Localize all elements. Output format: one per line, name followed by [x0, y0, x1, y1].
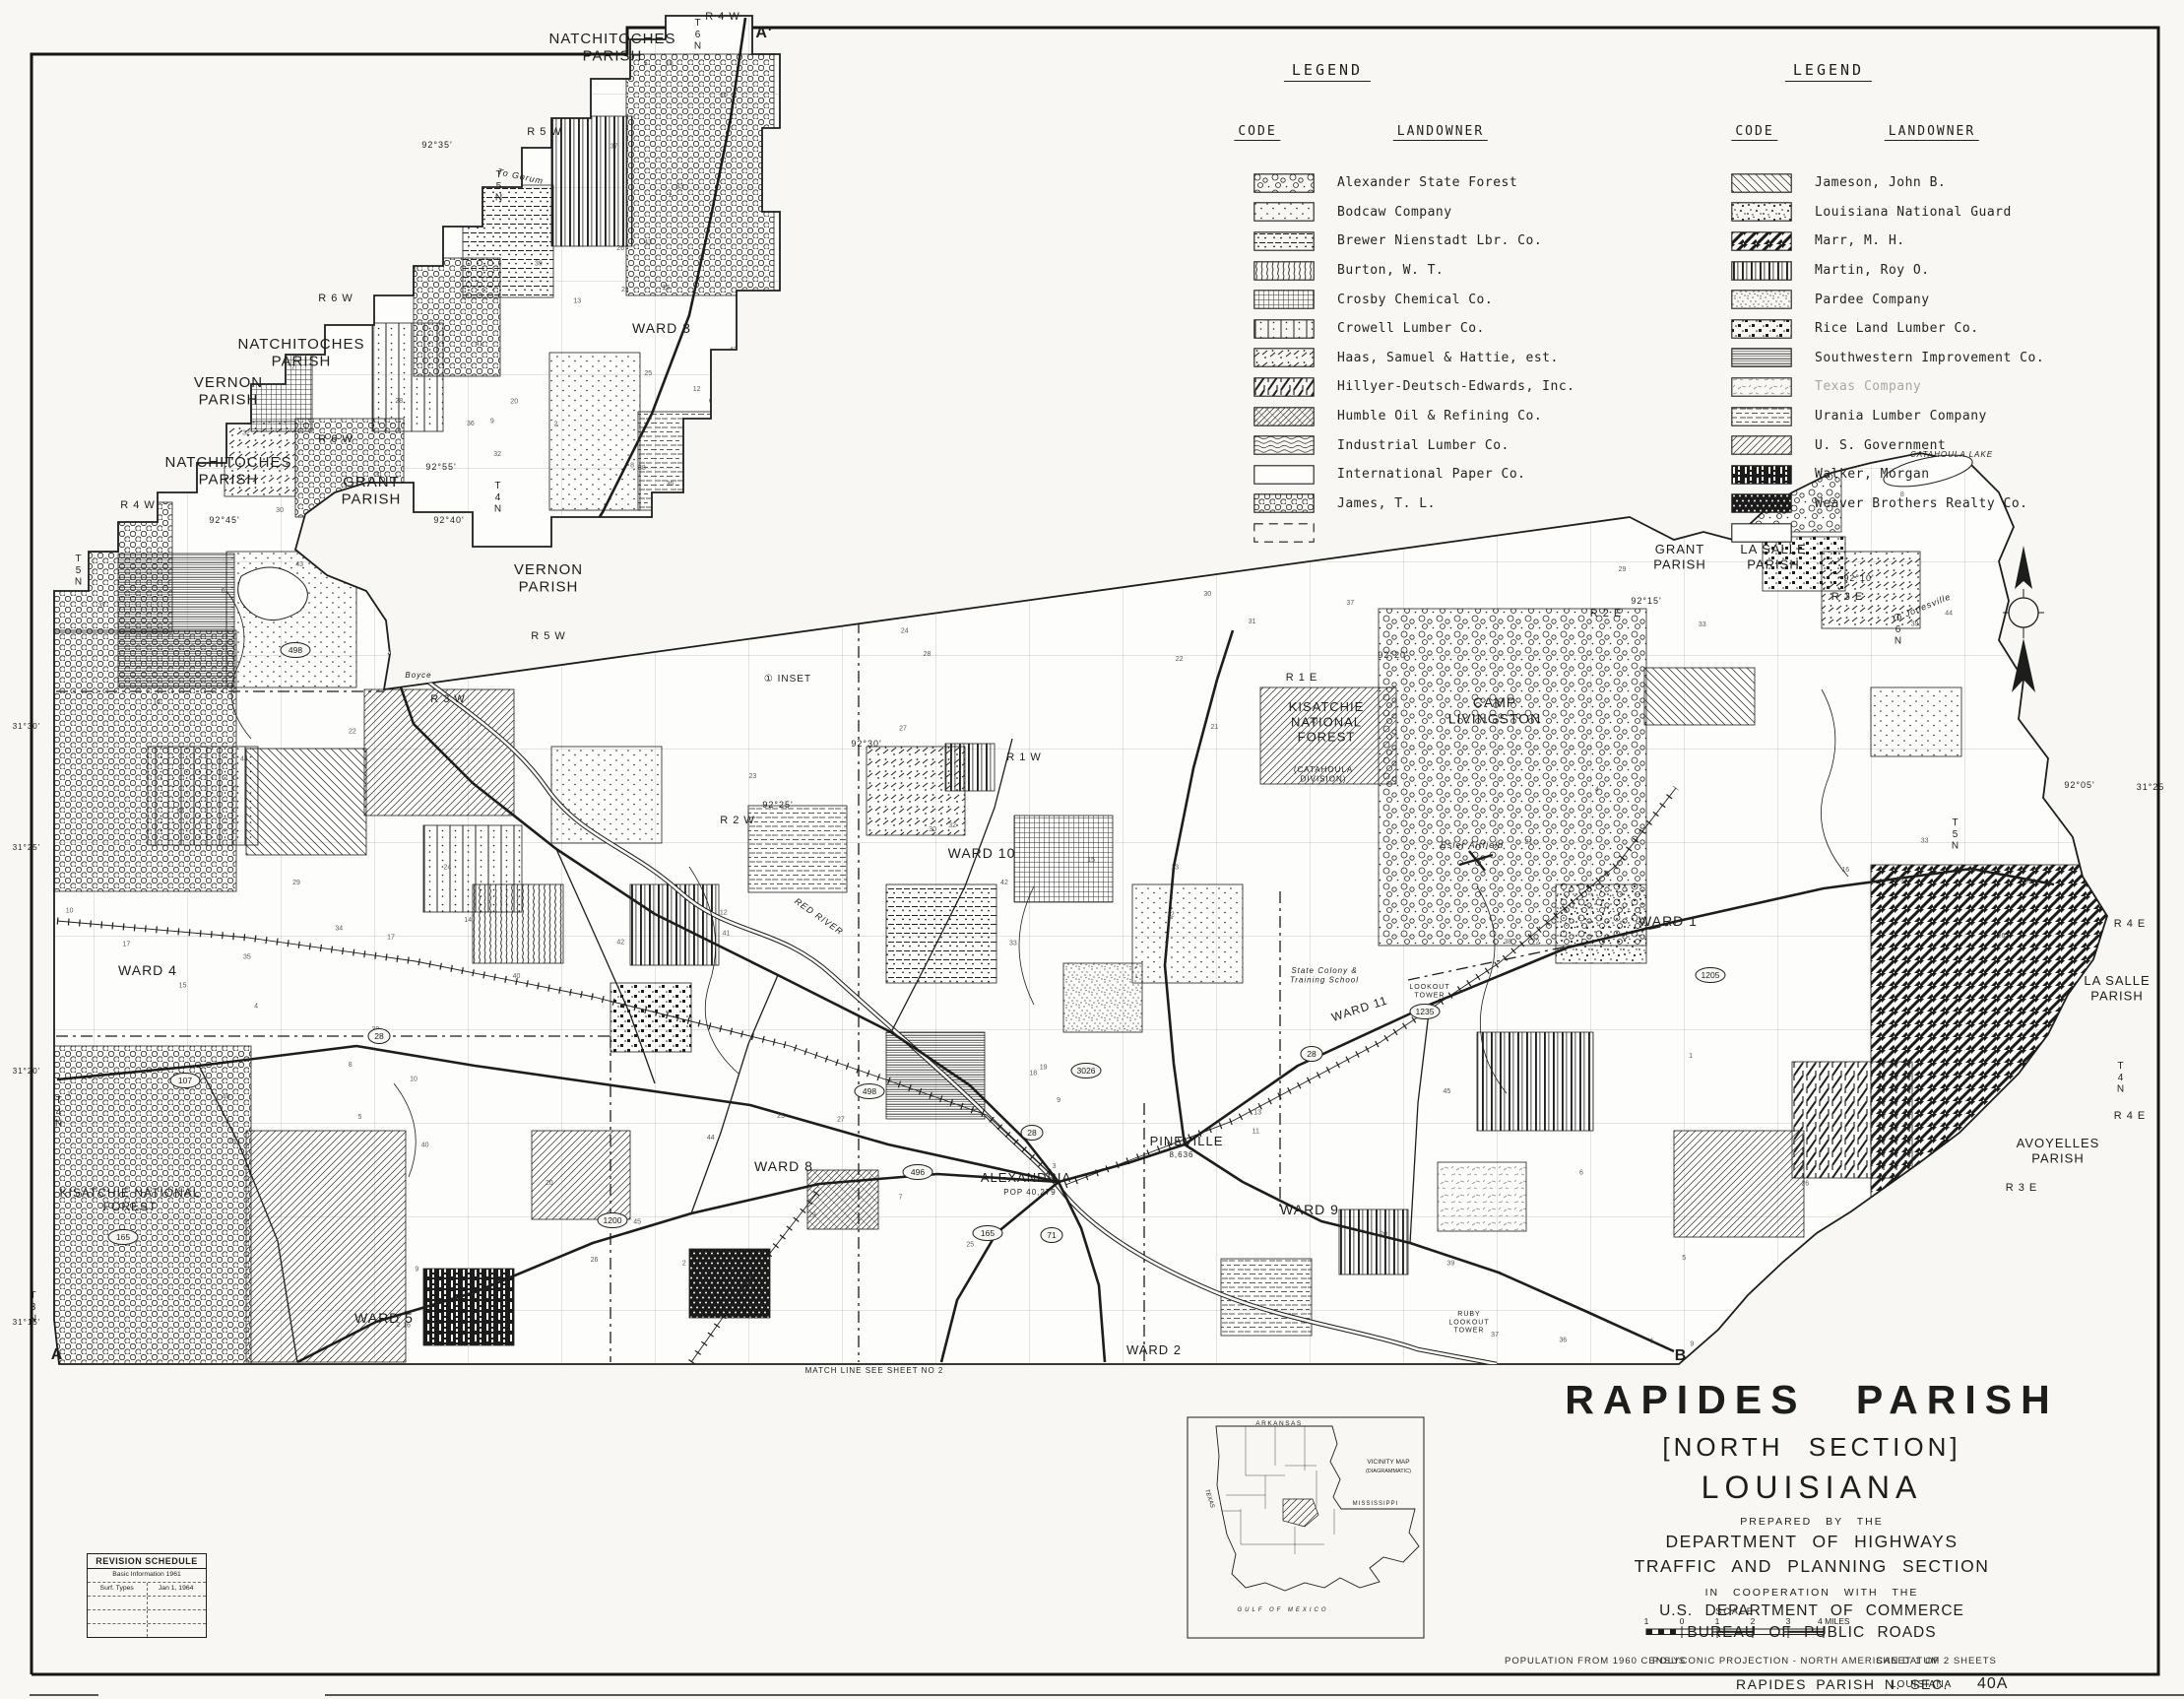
section-number: 9 — [1690, 1340, 1694, 1347]
map-label: KISATCHIENATIONALFOREST — [1289, 699, 1365, 745]
map-label: R 1 W — [1006, 751, 1042, 763]
legend-swatch-crosby-icon — [1253, 290, 1315, 309]
section-number: 40 — [223, 1094, 230, 1101]
section-number: 26 — [1998, 933, 2006, 940]
legend-label: Burton, W. T. — [1337, 263, 1444, 278]
section-number: 19 — [1138, 574, 1146, 581]
section-number: 33 — [675, 183, 683, 190]
map-label: GRANTPARISH — [1653, 542, 1705, 571]
svg-text:496: 496 — [911, 1167, 925, 1177]
section-number: 4 — [1595, 787, 1599, 794]
section-number: 32 — [242, 429, 250, 436]
map-label: WARD 10 — [948, 845, 1016, 861]
map-label: R 2 W — [720, 815, 755, 826]
section-number: 6 — [709, 398, 713, 405]
section-number: 24 — [761, 419, 769, 425]
section-number: 10 — [66, 908, 74, 915]
route-shield: 28 — [1021, 1126, 1043, 1141]
section-number: 11 — [814, 547, 821, 554]
map-label: R 4 W — [705, 11, 740, 23]
section-number: 34 — [718, 589, 726, 596]
legend-swatch-bodcaw-icon — [1253, 202, 1315, 222]
map-label: T5N — [495, 169, 503, 204]
section-number: 44 — [510, 146, 518, 153]
section-number: 8 — [311, 106, 315, 113]
section-number: 23 — [241, 176, 249, 183]
section-number: 33 — [1921, 837, 1929, 844]
map-label: 8,636 — [1169, 1150, 1193, 1159]
section-number: 22 — [672, 493, 679, 500]
section-number: 30 — [929, 826, 936, 833]
legend-label: Martin, Roy O. — [1815, 263, 1930, 278]
section-number: 12 — [693, 386, 701, 393]
section-number: 6 — [345, 153, 349, 160]
section-number: 41 — [797, 495, 804, 502]
section-number: 16 — [1841, 867, 1849, 874]
section-number: 42 — [616, 939, 624, 946]
scale-bar: SCALE 101234 MILES — [1615, 1605, 1900, 1641]
route-shield: 498 — [281, 643, 310, 658]
section-number: 44 — [240, 755, 248, 762]
section-number: 9 — [1057, 1097, 1060, 1104]
section-number: 1 — [669, 192, 673, 199]
section-number: 44 — [1945, 611, 1953, 618]
map-label: R 3 W — [430, 693, 466, 705]
scale-tick-label: 2 — [1751, 1616, 1756, 1626]
map-sheet: 1815222936435121926334029162330374461320… — [0, 0, 2184, 1699]
legend-label: U. S. Government — [1815, 438, 1946, 453]
route-shield: 165 — [973, 1226, 1002, 1241]
section-number: 1 — [1689, 1053, 1693, 1060]
map-label: R 4 W — [120, 499, 156, 511]
legend-entry: Alexander State Forest — [1253, 168, 1574, 198]
map-label: WARD 9 — [1280, 1202, 1339, 1217]
revision-title: REVISION SCHEDULE — [88, 1554, 206, 1569]
legend-entry: Urania Lumber Company — [1731, 402, 2044, 431]
legend-swatch-blank-icon — [1731, 523, 1792, 543]
section-number: 41 — [723, 930, 731, 937]
section-number: 15 — [662, 285, 670, 292]
revision-row: Surf. Types Jan 1, 1964 — [88, 1583, 206, 1597]
legend-swatch-urania-icon — [1731, 407, 1792, 426]
svg-text:3026: 3026 — [1077, 1066, 1096, 1076]
legend-entry: Haas, Samuel & Hattie, est. — [1253, 344, 1574, 373]
map-label: Boyce — [405, 671, 431, 680]
legend-label: Weaver Brothers Realty Co. — [1815, 496, 2028, 511]
svg-text:165: 165 — [116, 1232, 130, 1242]
section-number: 5 — [1682, 1255, 1686, 1262]
section-number: 2 — [554, 422, 558, 428]
scale-ticks: 101234 MILES — [1644, 1616, 1850, 1626]
map-title: RAPIDES PARISH — [1541, 1377, 2083, 1423]
parish-grid — [1222, 1426, 1334, 1554]
section-number: 12 — [720, 909, 728, 916]
scale-tick-label: 1 — [1644, 1616, 1649, 1626]
section-number: 28 — [924, 651, 931, 658]
map-label: MATCH LINE SEE SHEET NO 2 — [805, 1366, 944, 1375]
legend-entry: U. S. Government — [1731, 430, 2044, 460]
section-number: 22 — [1532, 939, 1540, 946]
legend-swatch-humble-icon — [1253, 407, 1315, 426]
map-label: State Colony &Training School — [1290, 966, 1359, 984]
section-number: 13 — [738, 433, 745, 440]
legend-label: Haas, Samuel & Hattie, est. — [1337, 351, 1559, 365]
section-number: 30 — [276, 507, 284, 514]
section-number: 29 — [808, 1212, 816, 1219]
legend-label: Southwestern Improvement Co. — [1815, 351, 2044, 365]
section-number: 26 — [616, 245, 624, 252]
map-label: 31°25' — [13, 843, 41, 852]
legend-left: LEGEND CODE LANDOWNER Alexander State Fo… — [1224, 59, 1559, 571]
legend-swatch-haas-icon — [1253, 348, 1315, 367]
map-label: PINEVILLE — [1150, 1134, 1224, 1148]
louisiana-outline — [1216, 1426, 1419, 1591]
section-number: 17 — [387, 935, 395, 942]
section-number: 27 — [366, 246, 374, 253]
route-shield: 3026 — [1071, 1064, 1101, 1078]
section-number: 29 — [292, 880, 300, 886]
section-number: 40 — [421, 1142, 429, 1148]
map-label: 31°15' — [13, 1318, 41, 1327]
section-number: 18 — [1923, 1318, 1931, 1325]
svg-text:1205: 1205 — [1702, 970, 1720, 980]
section-number: 14 — [153, 699, 161, 706]
section-number: 21 — [1525, 839, 1533, 846]
legend-entry: International Paper Co. — [1253, 460, 1574, 490]
map-label: GRANTPARISH — [342, 474, 402, 508]
svg-text:1200: 1200 — [604, 1215, 622, 1225]
legend-swatch-marr-icon — [1731, 231, 1792, 251]
map-label: B — [1675, 1347, 1688, 1364]
route-shield: 28 — [1301, 1047, 1322, 1062]
section-number: 17 — [446, 69, 454, 76]
section-number: 12 — [176, 808, 184, 815]
section-number: 43 — [295, 561, 303, 568]
inset-label-vicinity: VICINITY MAP — [1367, 1459, 1409, 1466]
map-label: WARD 1 — [1638, 913, 1698, 929]
legend-entry: Crowell Lumber Co. — [1253, 314, 1574, 344]
section-number: 20 — [510, 399, 518, 406]
legend-entry — [1731, 518, 2044, 548]
map-label: WARD 3 — [632, 320, 691, 336]
svg-text:71: 71 — [1047, 1230, 1057, 1240]
legend-rows: Jameson, John B.Louisiana National Guard… — [1731, 168, 2044, 548]
section-number: 19 — [277, 239, 285, 246]
section-number: 4 — [378, 79, 382, 86]
legend-label: James, T. L. — [1337, 496, 1436, 511]
svg-text:498: 498 — [863, 1086, 876, 1096]
map-label: WARD 4 — [118, 962, 177, 978]
section-number: 4 — [254, 1003, 258, 1010]
legend-label: Marr, M. H. — [1815, 233, 1905, 248]
section-number: 20 — [546, 1180, 553, 1187]
legend-entry: Rice Land Lumber Co. — [1731, 314, 2044, 344]
section-number: 3 — [1076, 534, 1080, 541]
section-number: 27 — [249, 219, 257, 226]
legend-label: Industrial Lumber Co. — [1337, 438, 1510, 453]
section-number: 15 — [1087, 857, 1095, 864]
legend-label: Jameson, John B. — [1815, 175, 1946, 190]
section-number: 16 — [714, 387, 722, 394]
section-number: 8 — [630, 462, 634, 469]
section-number: 33 — [1699, 621, 1706, 628]
map-label: R 1 E — [1286, 672, 1318, 684]
section-number: 2 — [682, 1261, 686, 1268]
legend-entry: Crosby Chemical Co. — [1253, 285, 1574, 314]
legend-label: Walker, Morgan — [1815, 467, 1930, 482]
section-number: 37 — [98, 602, 106, 609]
legend-label: Humble Oil & Refining Co. — [1337, 409, 1542, 424]
revision-row-empty — [88, 1610, 206, 1624]
legend-label: Brewer Nienstadt Lbr. Co. — [1337, 233, 1542, 248]
map-label: R 3 E — [2006, 1182, 2038, 1194]
map-label: 92°40' — [433, 515, 464, 525]
legend-label: Rice Land Lumber Co. — [1815, 321, 1979, 336]
map-label: T4N — [2117, 1061, 2125, 1095]
map-label: ALEXANDRIA — [981, 1170, 1071, 1185]
revision-row-empty — [88, 1624, 206, 1637]
legend-swatch-usgov-icon — [1731, 435, 1792, 455]
map-label: R 3 E — [1831, 591, 1864, 603]
route-shield: 1200 — [598, 1213, 627, 1228]
map-label: T4N — [55, 1095, 63, 1130]
map-label: WARD 8 — [754, 1158, 813, 1174]
section-number: 27 — [837, 1116, 845, 1123]
cooperation-line: IN COOPERATION WITH THE — [1541, 1587, 2083, 1599]
map-label: WARD 2 — [1126, 1342, 1182, 1357]
section-number: 20 — [258, 204, 266, 211]
scale-end-label: 4 MILES — [1818, 1616, 1850, 1626]
section-number: 39 — [1446, 1261, 1454, 1268]
section-number: 35 — [243, 953, 251, 960]
revision-date: Jan 1, 1964 — [159, 1585, 194, 1594]
legend-swatch-rice-icon — [1731, 319, 1792, 339]
route-shield: 28 — [368, 1029, 390, 1044]
legend-swatch-weaver-icon — [1731, 493, 1792, 513]
section-number: 31 — [2024, 879, 2032, 885]
legend-label: International Paper Co. — [1337, 467, 1526, 482]
revision-schedule: REVISION SCHEDULE Basic Information 1961… — [87, 1553, 207, 1638]
legend-entry: Walker, Morgan — [1731, 460, 2044, 490]
route-shield: 1205 — [1696, 968, 1725, 983]
prepared-by: PREPARED BY THE — [1541, 1516, 2083, 1528]
section-number: 6 — [222, 588, 225, 595]
section-number: 15 — [1119, 528, 1126, 535]
map-label: 92°10' — [1843, 573, 1874, 583]
legend-entry: Humble Oil & Refining Co. — [1253, 402, 1574, 431]
legend-swatch-industrial-icon — [1253, 435, 1315, 455]
section-number: 35 — [344, 88, 352, 95]
legend-label: Bodcaw Company — [1337, 205, 1452, 220]
legend-swatch-alexander-icon — [1253, 173, 1315, 193]
section-number: 10 — [720, 92, 728, 98]
section-number: 16 — [944, 585, 952, 592]
title-block: RAPIDES PARISH [NORTH SECTION] LOUISIANA… — [1541, 1377, 2083, 1642]
map-label: R 2 E — [1590, 608, 1623, 620]
section-number: 21 — [1210, 724, 1218, 731]
section-number: 5 — [644, 61, 648, 68]
legend-swatch-blank-icon — [1253, 465, 1315, 485]
section-number: 29 — [337, 115, 345, 122]
map-label: LA SALLEPARISH — [2084, 973, 2150, 1003]
map-label: T4N — [494, 481, 502, 515]
section-number: 37 — [610, 144, 618, 151]
section-number: 30 — [1203, 591, 1211, 598]
section-number: 24 — [443, 864, 451, 871]
section-number: 30 — [1678, 517, 1686, 524]
section-number: 7 — [433, 653, 437, 660]
scale-label: SCALE — [1715, 1606, 1755, 1616]
map-label: R 6 W — [318, 293, 353, 304]
section-number: 13 — [1171, 864, 1179, 871]
section-number: 26 — [591, 1257, 599, 1264]
legend-entry: Industrial Lumber Co. — [1253, 430, 1574, 460]
legend-entry — [1253, 518, 1574, 548]
section-number: 38 — [638, 465, 646, 472]
section-number: 27 — [899, 726, 907, 733]
map-label: 92°55' — [425, 462, 456, 472]
section-number: 44 — [707, 1135, 715, 1142]
section-number: 39 — [1911, 621, 1919, 628]
svg-text:498: 498 — [289, 645, 302, 655]
agency-line-1: DEPARTMENT OF HIGHWAYS — [1541, 1532, 2083, 1552]
section-number: 5 — [357, 1114, 361, 1121]
section-number: 37 — [1346, 600, 1354, 607]
vicinity-inset: ARKANSAS VICINITY MAP (DIAGRAMMATIC) TEX… — [1187, 1416, 1425, 1639]
section-number: 3 — [483, 72, 487, 79]
section-number: 22 — [349, 728, 356, 735]
section-number: 31 — [1249, 619, 1256, 625]
legend-entry: James, T. L. — [1253, 490, 1574, 519]
section-number: 23 — [228, 1139, 236, 1145]
map-label: A' — [755, 25, 772, 41]
section-number: 18 — [1029, 1070, 1037, 1077]
route-shield: 107 — [170, 1074, 200, 1088]
inset-label-diagrammatic: (DIAGRAMMATIC) — [1366, 1469, 1411, 1474]
revision-row: Basic Information 1961 — [88, 1569, 206, 1583]
section-number: 11 — [1253, 1128, 1259, 1135]
section-number: 33 — [1009, 940, 1017, 947]
legend-right: LEGEND CODE LANDOWNER Jameson, John B.Lo… — [1702, 59, 2036, 571]
legend-label: Texas Company — [1815, 379, 1921, 394]
section-number: 1 — [67, 1091, 71, 1098]
section-number: 23 — [1908, 1278, 1916, 1285]
map-label: 92°15' — [1631, 596, 1661, 606]
route-shield: 496 — [903, 1165, 932, 1180]
legend-label: Crosby Chemical Co. — [1337, 293, 1493, 307]
legend-swatch-swimp-icon — [1731, 348, 1792, 367]
section-number: 18 — [666, 61, 674, 68]
legend-label: Alexander State Forest — [1337, 175, 1517, 190]
legend-swatch-brewer-icon — [1253, 231, 1315, 251]
section-number: 11 — [463, 178, 470, 185]
route-shield: 1235 — [1410, 1005, 1440, 1019]
legend-entry: Pardee Company — [1731, 285, 2044, 314]
legend-code-header: CODE — [1731, 124, 1777, 141]
map-subtitle: [NORTH SECTION] — [1541, 1432, 2083, 1463]
map-label: 31°25 — [2137, 782, 2165, 792]
section-number: 32 — [493, 451, 501, 458]
map-label: R 4 E — [2114, 1110, 2147, 1122]
section-number: 20 — [1380, 1231, 1387, 1238]
legend-swatch-pardee-icon — [1731, 290, 1792, 309]
section-number: 1 — [1650, 1338, 1654, 1344]
map-label: Esler Airfield — [1441, 840, 1504, 850]
section-number: 8 — [349, 1062, 353, 1069]
section-number: 37 — [1491, 1332, 1499, 1339]
section-number: 35 — [1896, 877, 1904, 883]
map-label: VERNONPARISH — [194, 374, 263, 409]
legend-entry: Bodcaw Company — [1253, 198, 1574, 228]
legend-swatch-burton-icon — [1253, 261, 1315, 281]
legend-entry: Hillyer-Deutsch-Edwards, Inc. — [1253, 372, 1574, 402]
legend-label: Pardee Company — [1815, 293, 1930, 307]
section-number: 42 — [1000, 880, 1008, 886]
section-number: 25 — [777, 1113, 785, 1120]
route-shield: 71 — [1041, 1228, 1062, 1243]
scale-tick-label: 0 — [1680, 1616, 1685, 1626]
section-number: 14 — [464, 917, 472, 924]
map-label: 92°25' — [762, 800, 793, 810]
legend-label: Hillyer-Deutsch-Edwards, Inc. — [1337, 379, 1574, 394]
map-label: R 5 W — [531, 630, 566, 642]
section-number: 21 — [621, 287, 629, 294]
map-label: AVOYELLESPARISH — [2017, 1136, 2100, 1165]
inset-label-arkansas: ARKANSAS — [1255, 1420, 1302, 1427]
legend-swatch-walker-icon — [1731, 465, 1792, 485]
map-label: T6N — [694, 18, 702, 52]
revision-item: Surf. Types — [100, 1585, 134, 1594]
map-label: 92°30' — [851, 739, 881, 749]
footer-sheet: SHEET 1 OF 2 SHEETS — [1876, 1656, 1997, 1666]
svg-text:28: 28 — [374, 1031, 384, 1041]
legend-swatch-crowell-icon — [1253, 319, 1315, 339]
legend-label: Urania Lumber Company — [1815, 409, 1987, 424]
section-number: 40 — [513, 973, 521, 980]
svg-text:28: 28 — [1307, 1049, 1317, 1059]
legend-title: LEGEND — [1785, 61, 1872, 82]
legend-label: Louisiana National Guard — [1815, 205, 2012, 220]
legend-swatch-lng-icon — [1731, 202, 1792, 222]
section-number: 5 — [397, 639, 401, 646]
section-number: 13 — [573, 297, 581, 304]
legend-swatch-texas-icon — [1731, 377, 1792, 397]
map-label: R 4 E — [2114, 918, 2147, 930]
map-label: WARD 5 — [354, 1310, 414, 1326]
svg-text:28: 28 — [1027, 1128, 1037, 1138]
legend-entry: Southwestern Improvement Co. — [1731, 344, 2044, 373]
section-number: 28 — [395, 398, 403, 405]
map-label: R 5 W — [527, 126, 562, 138]
section-number: 39 — [535, 261, 543, 268]
legend-landowner-header: LANDOWNER — [1393, 124, 1488, 141]
inset-label-gulf: GULF OF MEXICO — [1237, 1607, 1328, 1613]
section-number: 19 — [1040, 1064, 1048, 1071]
section-number: 36 — [1559, 1338, 1567, 1344]
map-label: 92°05' — [2064, 780, 2094, 790]
legend-entry: Marr, M. H. — [1731, 227, 2044, 256]
section-number: 9 — [490, 418, 494, 425]
footer-page-number: 40A — [1977, 1675, 2008, 1693]
section-number: 22 — [1176, 656, 1184, 663]
svg-text:1235: 1235 — [1416, 1007, 1435, 1016]
section-number: 40 — [727, 458, 735, 465]
legend-entry: Louisiana National Guard — [1731, 198, 2044, 228]
legend-title: LEGEND — [1284, 61, 1371, 82]
map-label: R 6 W — [318, 433, 353, 445]
svg-text:165: 165 — [981, 1228, 995, 1238]
section-number: 29 — [1619, 566, 1627, 573]
